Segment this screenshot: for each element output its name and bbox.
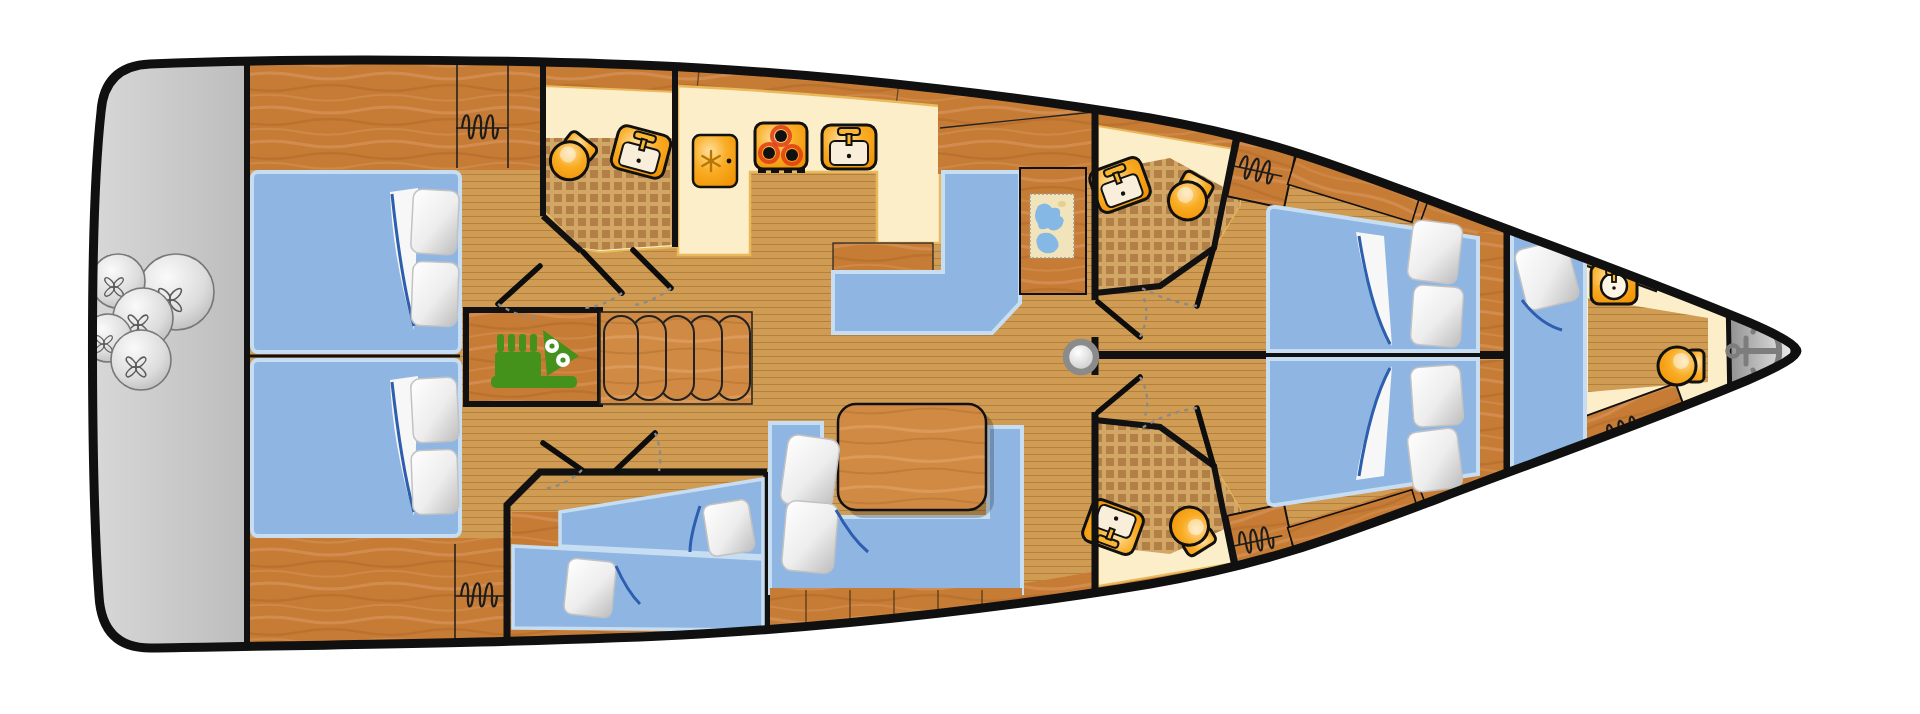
pillow xyxy=(563,558,617,619)
aft-cabin-starboard xyxy=(252,360,460,536)
salon xyxy=(770,404,1022,630)
single-bed xyxy=(513,546,763,630)
pillow xyxy=(1410,364,1464,427)
pillow xyxy=(1410,284,1464,347)
sink-icon xyxy=(822,125,876,169)
deck-plan-svg xyxy=(0,0,1920,714)
pillow xyxy=(1407,219,1464,285)
pillow xyxy=(702,499,756,558)
pillow xyxy=(410,189,459,255)
aft-cabin-port xyxy=(252,172,460,352)
fwd-cabin-port xyxy=(1268,207,1478,351)
pillow xyxy=(781,500,839,574)
companionway xyxy=(600,312,752,404)
stove-icon xyxy=(755,123,807,173)
engine-room xyxy=(466,310,600,404)
pillow xyxy=(411,261,459,327)
dining-table xyxy=(838,404,986,510)
anchor-locker xyxy=(1728,296,1794,406)
pillow xyxy=(779,434,840,511)
pillow xyxy=(411,449,459,515)
pillow xyxy=(1407,427,1464,493)
toilet-icon xyxy=(1658,347,1704,385)
mast-icon xyxy=(1066,342,1096,372)
deck-plan-stage xyxy=(0,0,1920,714)
sea-chart-icon xyxy=(1030,194,1074,258)
pillow xyxy=(410,377,459,443)
fwd-cabin-starboard xyxy=(1268,359,1478,505)
fender-icon xyxy=(111,330,171,390)
aft-head xyxy=(543,86,675,252)
fridge-icon xyxy=(693,135,737,187)
